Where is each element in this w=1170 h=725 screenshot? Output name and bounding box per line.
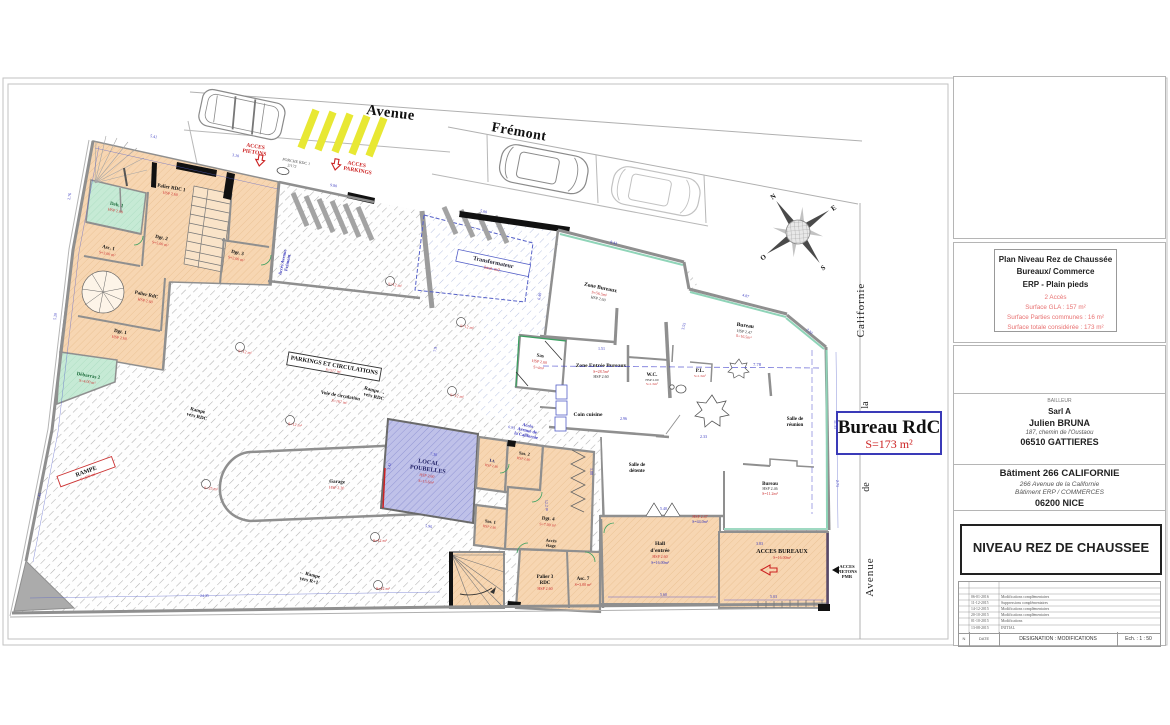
svg-text:2.33: 2.33 [700,434,707,439]
svg-text:S=1.5m²: S=1.5m² [646,382,658,386]
svg-text:S=44.0m²: S=44.0m² [692,519,709,524]
svg-text:PARKINGS: PARKINGS [343,166,372,177]
svg-text:Modifications complémentaires: Modifications complémentaires [1001,613,1050,617]
svg-text:Hall: Hall [655,541,666,547]
svg-text:HSP 2.60: HSP 2.60 [537,586,552,591]
svg-text:5.20: 5.20 [52,313,58,321]
svg-text:S=16.00m²: S=16.00m² [773,555,792,560]
svg-text:S=1.5m²: S=1.5m² [694,374,706,378]
svg-text:HSP 2.30: HSP 2.30 [329,484,345,490]
svg-text:Avenue: Avenue [864,557,876,596]
svg-text:5.40: 5.40 [660,506,667,511]
svg-text:Salle de: Salle de [787,417,804,422]
svg-text:11-12-2015: 11-12-2015 [971,601,989,605]
svg-text:13-08-2015: 13-08-2015 [971,626,989,630]
svg-text:1.88: 1.88 [589,468,594,475]
svg-text:3.83: 3.83 [756,541,763,546]
svg-text:HSP 2.60: HSP 2.60 [593,374,608,379]
svg-text:12.2 m: 12.2 m [544,500,550,512]
svg-text:HSP 2.60: HSP 2.60 [652,554,667,559]
svg-text:S=12 m²: S=12 m² [376,586,391,591]
svg-text:3.10: 3.10 [232,152,240,158]
svg-text:N: N [769,192,778,201]
svg-text:Palier 3: Palier 3 [537,575,554,580]
svg-text:O: O [759,252,769,262]
svg-text:9.80: 9.80 [330,182,338,188]
svg-text:5.96: 5.96 [425,523,433,529]
svg-text:20-10-2015: 20-10-2015 [971,613,989,617]
svg-text:S=3.00 m²: S=3.00 m² [575,582,593,587]
svg-text:S: S [819,264,827,273]
svg-text:la: la [860,401,871,409]
svg-text:14-12-2015: 14-12-2015 [971,607,989,611]
svg-text:INITIAL: INITIAL [1001,626,1016,630]
svg-text:réunion: réunion [787,423,804,428]
svg-text:5.00: 5.00 [480,208,488,214]
svg-text:Avenue: Avenue [366,102,416,124]
svg-text:24.35: 24.35 [200,593,209,598]
svg-text:2.96: 2.96 [620,416,627,421]
svg-text:PMR: PMR [842,574,853,579]
svg-text:5.03: 5.03 [770,594,777,599]
svg-text:Bureau RdC: Bureau RdC [838,417,941,438]
svg-text:E: E [830,203,839,212]
svg-text:Suppressions complémentaires: Suppressions complémentaires [1001,601,1048,605]
svg-text:Modifications complémentaires: Modifications complémentaires [1001,607,1050,611]
svg-text:Modifications: Modifications [1001,619,1023,623]
svg-text:Salle de: Salle de [629,463,646,468]
svg-text:étage: étage [546,543,556,549]
svg-text:détente: détente [629,469,645,474]
svg-text:1.51: 1.51 [598,346,605,351]
svg-text:4.87: 4.87 [742,292,750,299]
svg-text:S=12 m²: S=12 m² [373,538,388,543]
svg-text:7.78: 7.78 [753,362,762,367]
svg-text:de: de [861,482,872,492]
svg-text:Coin cuisine: Coin cuisine [574,412,603,418]
svg-text:S=16.00m²: S=16.00m² [651,560,670,565]
svg-text:7.9: 7.9 [432,346,438,352]
svg-text:Lt.: Lt. [489,458,495,464]
svg-text:Californie: Californie [855,283,867,338]
svg-text:S=173 m²: S=173 m² [865,437,913,451]
svg-text:Modifications complémentaires: Modifications complémentaires [1001,595,1050,599]
svg-text:06-01-2016: 06-01-2016 [971,595,989,599]
svg-text:Frémont: Frémont [490,120,547,144]
svg-text:5.60: 5.60 [660,592,667,597]
svg-text:5.41: 5.41 [150,133,158,139]
svg-text:S=11.2m²: S=11.2m² [762,491,778,496]
svg-text:01-10-2015: 01-10-2015 [971,619,989,623]
svg-text:2.76: 2.76 [66,192,72,200]
svg-text:2.71: 2.71 [835,480,840,487]
svg-text:2/172: 2/172 [287,162,297,169]
